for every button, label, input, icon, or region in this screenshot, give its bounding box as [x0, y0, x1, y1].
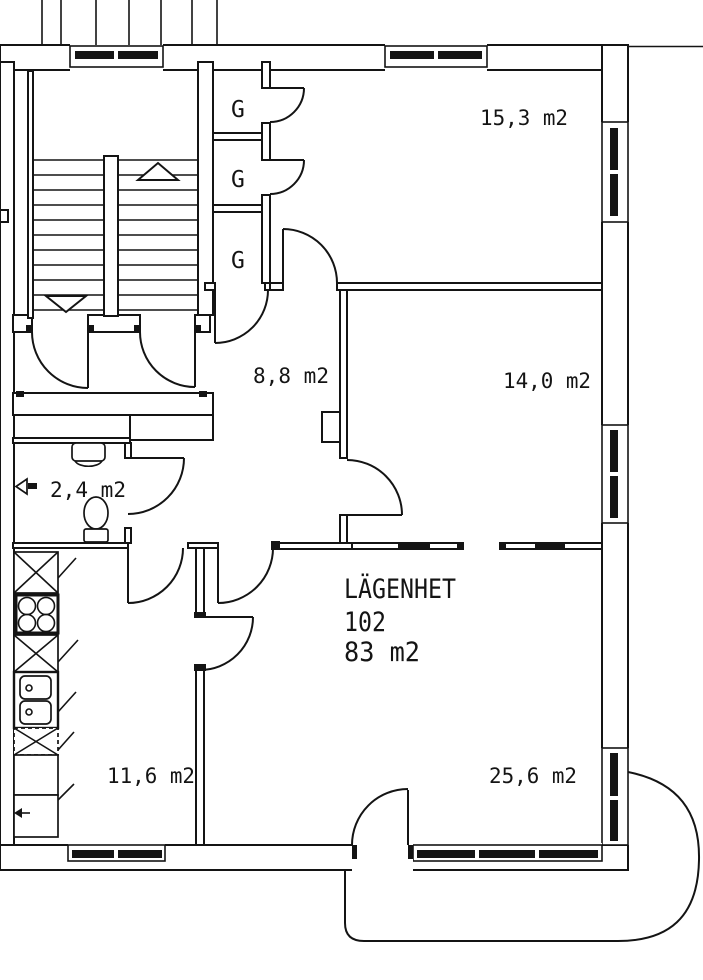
- apartment-number: 102: [344, 607, 386, 638]
- left-wall-stub: [0, 210, 8, 222]
- counter-tick-marks: [58, 558, 78, 800]
- window-room2-right: [599, 425, 631, 523]
- window-stairwell-top: [70, 43, 163, 72]
- door-living-passage: [218, 548, 273, 603]
- closet-label: G: [231, 248, 245, 274]
- window-kitchen-bottom: [68, 843, 165, 863]
- vent-arrow-wc: [16, 479, 37, 494]
- door-wc: [128, 458, 184, 514]
- windows: [68, 43, 631, 863]
- room-area-label: 11,6 m2: [107, 764, 195, 788]
- sink: [14, 672, 58, 728]
- apartment-title-block: LÄGENHET 102 83 m2: [344, 573, 456, 668]
- kitchen-cabinet-3: [14, 728, 58, 755]
- stair-handrail: [104, 156, 118, 316]
- door-kitchen-living: [200, 617, 253, 670]
- door-room2: [347, 460, 402, 515]
- toilet: [84, 497, 108, 542]
- room-area-label: 2,4 m2: [50, 478, 126, 502]
- stair-up-arrow: [138, 163, 178, 180]
- room-area-label: 8,8 m2: [253, 364, 329, 388]
- door-balcony: [352, 789, 413, 872]
- entrance-door-left: [32, 332, 88, 388]
- entrance-porch-steps: [42, 0, 217, 45]
- door-closet-g1: [270, 88, 304, 122]
- duct-bump: [322, 412, 340, 442]
- window-room1-top: [385, 43, 487, 72]
- door-closet-g3: [215, 290, 268, 343]
- apartment-title: LÄGENHET: [344, 573, 456, 605]
- door-kitchen: [128, 548, 183, 603]
- washbasin: [72, 443, 105, 466]
- door-closet-g2: [270, 160, 304, 194]
- door-room1: [283, 229, 337, 283]
- kitchen-cabinet-4: [14, 755, 58, 795]
- floor-plan-drawing: 15,3 m2 14,0 m2 8,8 m2 2,4 m2 11,6 m2 25…: [0, 0, 703, 980]
- kitchen-cabinet-1: [14, 552, 58, 593]
- kitchen-cabinet-2: [14, 635, 58, 672]
- window-room1-right: [599, 122, 631, 222]
- entrance-door-right: [140, 332, 195, 387]
- room-area-label: 25,6 m2: [489, 764, 577, 788]
- room-area-label: 15,3 m2: [480, 106, 568, 130]
- window-living-right: [599, 748, 631, 845]
- stairwell: [28, 71, 198, 318]
- floor-plan: 15,3 m2 14,0 m2 8,8 m2 2,4 m2 11,6 m2 25…: [0, 0, 703, 980]
- stove: [16, 595, 58, 633]
- room-area-label: 14,0 m2: [503, 369, 591, 393]
- closet-label: G: [231, 167, 245, 193]
- kitchen-fixtures: [14, 552, 78, 837]
- closet-label: G: [231, 97, 245, 123]
- apartment-area: 83 m2: [344, 637, 420, 668]
- window-living-bottom: [413, 843, 602, 863]
